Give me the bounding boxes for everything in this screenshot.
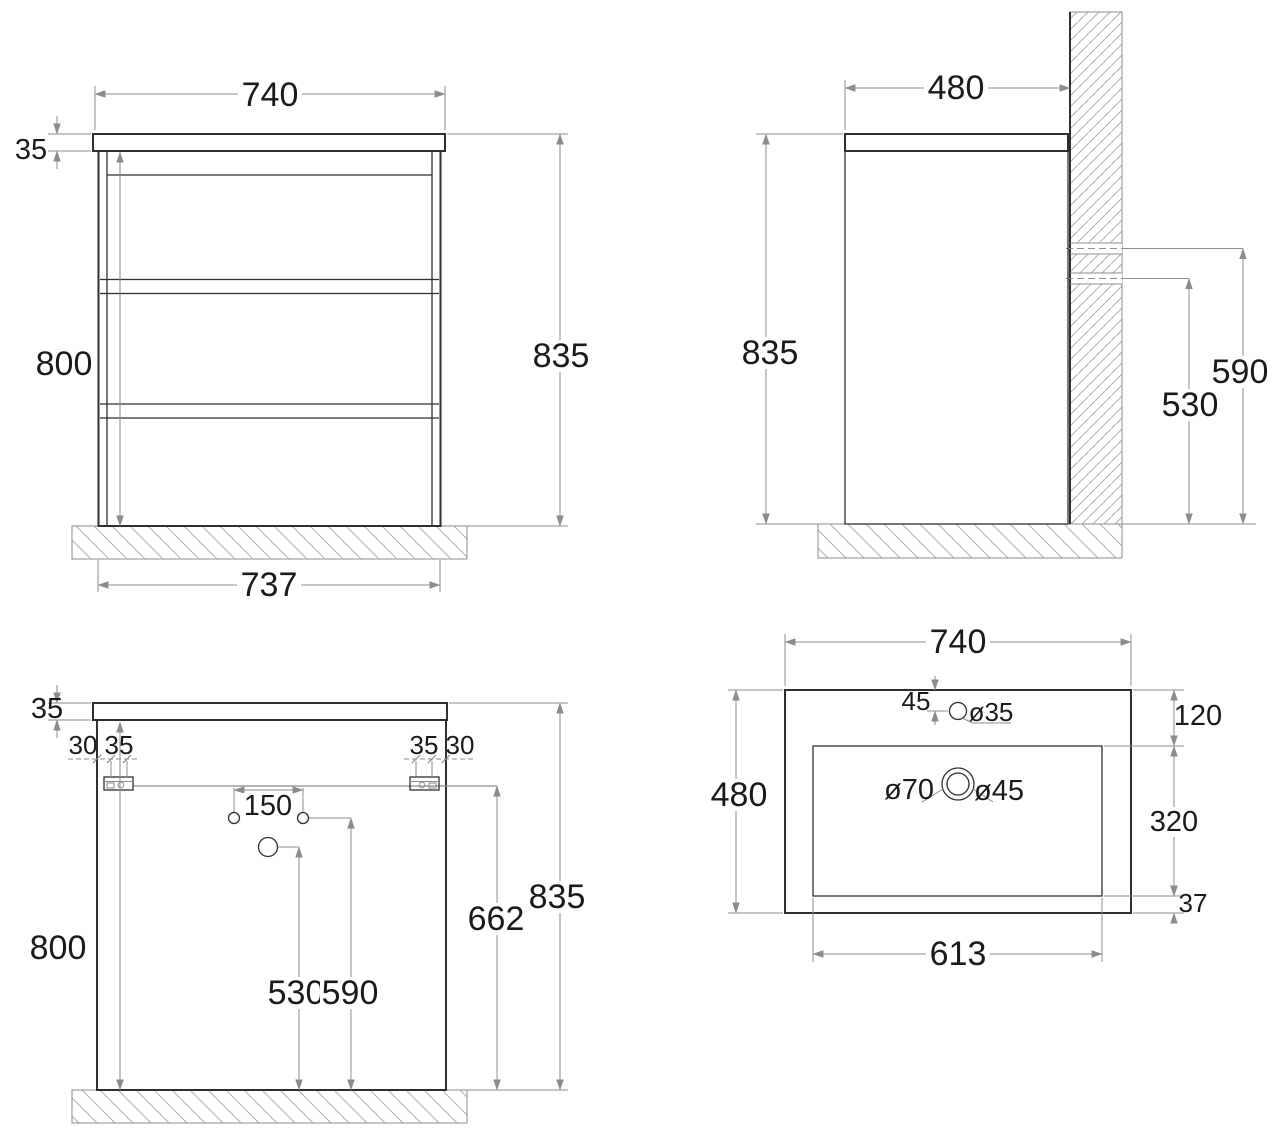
- cabinet-body-back: [97, 720, 446, 1090]
- floor-hatch: [72, 1090, 467, 1123]
- dim-label-back-total-height: 835: [529, 878, 586, 916]
- dim-label-faucet-hole-diameter: ø35: [969, 697, 1014, 727]
- cabinet-body-side: [845, 151, 1068, 524]
- dim-label-sink-width: 740: [930, 623, 987, 661]
- dim-label-basin-width: 613: [930, 935, 987, 973]
- dim-label-rim-bottom: 37: [1179, 888, 1208, 918]
- hanger-bracket-right: [410, 777, 439, 790]
- drawing-sheet: 740 35 800 835 737: [0, 0, 1279, 1141]
- side-view: 480 835 590 530: [738, 12, 1272, 558]
- siphon-hole: [259, 838, 278, 857]
- dim-label-offset-outer-right: 30: [446, 730, 475, 760]
- floor-hatch: [72, 526, 467, 559]
- dim-label-front-top-thickness: 35: [15, 134, 47, 166]
- dim-label-offset-inner-left: 35: [105, 730, 134, 760]
- dim-label-offset-inner-right: 35: [410, 730, 439, 760]
- sink-outer-rim: [785, 690, 1131, 913]
- dim-label-back-top-thickness: 35: [31, 693, 63, 725]
- side-dimensions: 480 835 590 530: [738, 69, 1272, 524]
- dim-label-bracket-height: 662: [468, 900, 525, 938]
- faucet-hole: [950, 703, 967, 720]
- dim-label-front-total-height: 835: [533, 337, 590, 375]
- dim-label-side-total-height: 835: [742, 334, 799, 372]
- dim-label-faucet-offset: 45: [902, 686, 931, 716]
- dim-label-sink-depth: 480: [711, 776, 768, 814]
- dim-label-rim-top: 120: [1174, 700, 1222, 732]
- dim-label-faucet-height: 590: [322, 974, 379, 1012]
- dim-label-pipe-upper-height: 590: [1212, 353, 1269, 391]
- dim-label-hole-spacing: 150: [244, 790, 292, 822]
- front-dimensions: 740 35 800 835 737: [15, 76, 593, 604]
- dim-label-offset-outer-left: 30: [69, 730, 98, 760]
- countertop-back: [93, 703, 447, 720]
- faucet-fixing-hole-right: [298, 813, 309, 824]
- dim-label-drain-outer-diameter: ø70: [884, 774, 934, 806]
- drain-hole-inner: [947, 773, 969, 795]
- back-dimensions: 35 30 35 35 30 150: [26, 685, 589, 1090]
- cabinet-inner-lines: [100, 151, 439, 526]
- dim-label-siphon-height: 530: [268, 974, 325, 1012]
- wall-hatch: [1070, 12, 1122, 524]
- hanger-bracket-left: [104, 777, 133, 790]
- dim-label-side-depth: 480: [928, 69, 985, 107]
- cabinet-body-front: [99, 151, 441, 526]
- back-view: 35 30 35 35 30 150: [26, 685, 589, 1123]
- countertop-side: [845, 134, 1068, 151]
- floor-hatch: [818, 524, 1122, 558]
- dim-label-front-bottom-width: 737: [241, 566, 298, 604]
- faucet-fixing-hole-left: [229, 813, 240, 824]
- dim-label-basin-depth: 320: [1150, 806, 1198, 838]
- dim-label-drain-inner-diameter: ø45: [974, 775, 1024, 807]
- dim-label-back-body-height: 800: [30, 929, 87, 967]
- sink-top-view: 740 480 45 ø35 ø70 ø45: [707, 623, 1222, 973]
- dim-label-front-body-height: 800: [36, 345, 93, 383]
- front-view: 740 35 800 835 737: [15, 76, 593, 604]
- countertop-front: [93, 134, 445, 151]
- dim-label-front-width: 740: [242, 76, 299, 114]
- dim-label-pipe-lower-height: 530: [1162, 386, 1219, 424]
